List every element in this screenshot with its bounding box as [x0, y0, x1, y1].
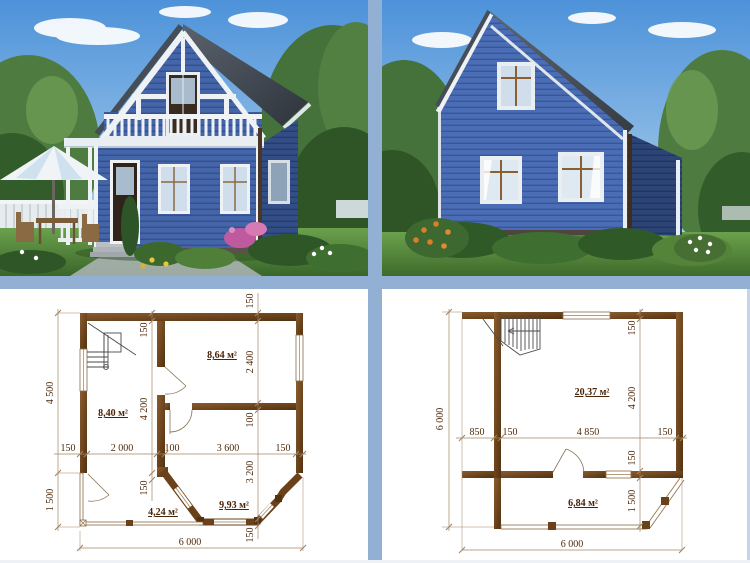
dim-label: 4 200	[627, 387, 638, 410]
dim-label: 2 000	[111, 443, 134, 454]
dim-label: 4 850	[577, 427, 600, 438]
dim-label: 150	[627, 451, 638, 466]
plan-second-floor: 6 000 150 4 200 150 1 500 850 150 4 850 …	[382, 289, 750, 563]
dim-label: 1 500	[45, 489, 56, 512]
stairs-symbol	[87, 323, 136, 369]
horizontal-divider	[0, 276, 750, 289]
house-project-collage: 4 500 1 500 150 4 200 150 150 2 400 100 …	[0, 0, 750, 563]
rear-view-illustration	[382, 0, 750, 276]
dim-label: 150	[245, 528, 256, 543]
dim-label: 150	[658, 427, 673, 438]
second-floor-plan-drawing: 6 000 150 4 200 150 1 500 850 150 4 850 …	[382, 289, 750, 563]
gable-window	[497, 62, 535, 110]
dim-label: 6 000	[179, 537, 202, 548]
front-window-1	[158, 164, 190, 214]
dim-label: 150	[139, 481, 150, 496]
front-view-illustration	[0, 0, 368, 276]
rear-window-1	[480, 156, 522, 204]
bay-walls	[163, 471, 300, 524]
dim-label: 2 400	[245, 351, 256, 374]
dimension-labels: 6 000 150 4 200 150 1 500 850 150 4 850 …	[435, 321, 673, 551]
side-window	[268, 160, 290, 204]
dim-label: 6 000	[561, 539, 584, 550]
room-area-label: 8,40 м²	[98, 408, 128, 419]
dim-label: 100	[165, 443, 180, 454]
walls	[462, 312, 683, 529]
dim-label: 3 600	[217, 443, 240, 454]
dim-label: 150	[139, 323, 150, 338]
room-area-label: 9,93 м²	[219, 500, 249, 511]
dim-label: 4 200	[139, 398, 150, 421]
dim-label: 150	[245, 294, 256, 309]
front-window-2	[220, 164, 250, 214]
dim-label: 100	[245, 413, 256, 428]
dim-label: 4 500	[45, 382, 56, 405]
room-area-label: 20,37 м²	[575, 387, 610, 398]
dim-label: 150	[627, 321, 638, 336]
room-labels: 20,37 м² 6,84 м²	[568, 387, 609, 509]
dim-label: 1 500	[627, 490, 638, 513]
room-area-label: 4,24 м²	[148, 507, 178, 518]
door-swings	[553, 449, 584, 472]
dim-label: 150	[61, 443, 76, 454]
dim-label: 150	[276, 443, 291, 454]
stairs-symbol	[483, 318, 540, 355]
room-area-label: 6,84 м²	[568, 498, 598, 509]
dim-label: 150	[503, 427, 518, 438]
photo-rear-view	[382, 0, 750, 276]
rear-window-2	[558, 152, 604, 202]
first-floor-plan-drawing: 4 500 1 500 150 4 200 150 150 2 400 100 …	[0, 289, 368, 563]
plan-first-floor: 4 500 1 500 150 4 200 150 150 2 400 100 …	[0, 289, 368, 563]
dim-label: 6 000	[435, 408, 446, 431]
downpipe	[628, 134, 632, 234]
dim-label: 3 200	[245, 461, 256, 484]
wall-windows	[80, 335, 303, 391]
dim-label: 850	[470, 427, 485, 438]
photo-front-view	[0, 0, 368, 276]
room-area-label: 8,64 м²	[207, 350, 237, 361]
